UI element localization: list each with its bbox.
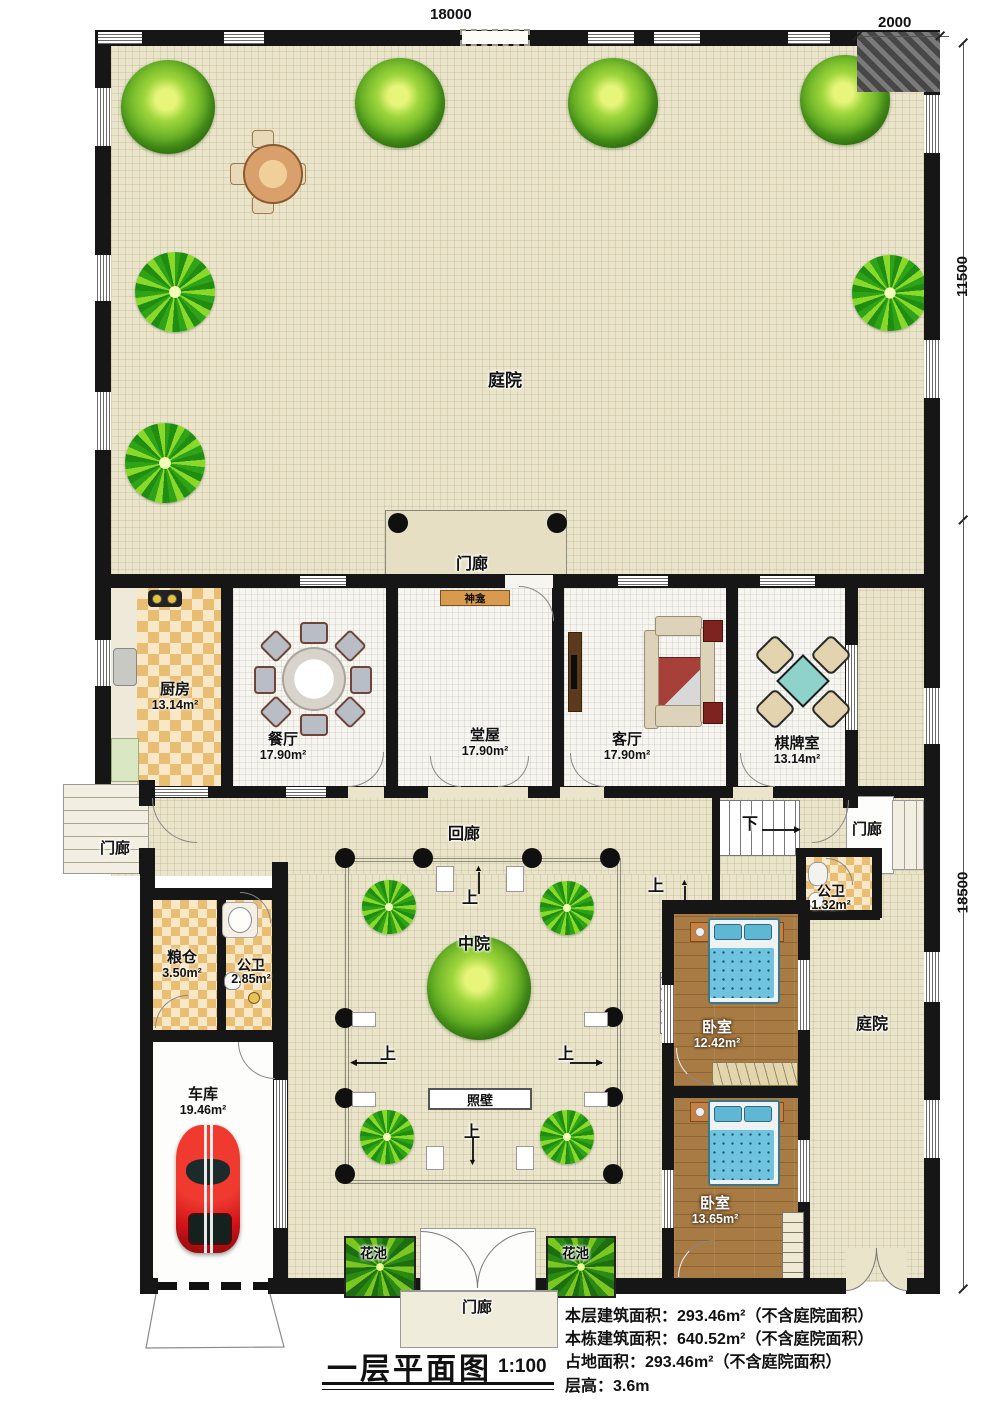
- title-underline-thin: [322, 1389, 554, 1390]
- palm-plant: [540, 1110, 594, 1164]
- sink: [113, 648, 137, 686]
- wardrobe: [712, 1062, 798, 1086]
- chess-label: 棋牌室: [774, 736, 819, 753]
- column: [522, 848, 542, 868]
- palm-plant: [540, 881, 594, 935]
- kitchen-area: 13.14m²: [152, 699, 199, 713]
- granary-label: 粮仓: [167, 950, 197, 967]
- tree: [568, 58, 658, 148]
- column: [335, 848, 355, 868]
- stairs-up-label: 上: [462, 884, 478, 908]
- flower-bed: 花池: [344, 1236, 416, 1298]
- window: [924, 1100, 940, 1158]
- kitchen-label: 厨房: [160, 682, 190, 699]
- tree: [121, 60, 215, 154]
- nightstand: [690, 1102, 710, 1122]
- palm-plant: [135, 252, 215, 332]
- stair-flight: [782, 1212, 804, 1280]
- floor-plan: 庭院 门廊: [0, 0, 1000, 1414]
- column: [547, 513, 567, 533]
- wall: [221, 574, 233, 786]
- window: [95, 640, 111, 686]
- dim-line: [857, 36, 949, 37]
- dim-right-upper: 11500: [954, 256, 971, 297]
- garage-door-dashed: [157, 1282, 269, 1290]
- wall: [662, 900, 810, 914]
- wall: [140, 888, 288, 900]
- shrine-label: 神龛: [465, 591, 486, 606]
- door-opening: [428, 787, 528, 798]
- gate-dashed: [462, 31, 528, 44]
- living-label: 客厅: [612, 732, 642, 749]
- window: [924, 95, 940, 153]
- stove-burner: [152, 594, 162, 604]
- pillow: [744, 924, 772, 940]
- window: [224, 32, 264, 44]
- cloister-label: 回廊: [448, 820, 480, 844]
- door-opening: [733, 787, 773, 798]
- column: [603, 1164, 623, 1184]
- dining-table: [282, 647, 346, 711]
- car-windshield: [186, 1159, 230, 1185]
- wall: [906, 1278, 940, 1294]
- screen-window: [286, 787, 326, 797]
- rug: [657, 657, 704, 712]
- arrow-line: [478, 872, 480, 894]
- column: [388, 513, 408, 533]
- flower-bed-right-label: 花池: [562, 1242, 589, 1262]
- wall: [386, 574, 398, 786]
- wall-hatch-block: [857, 32, 940, 92]
- dim-top-width: 18000: [430, 6, 472, 23]
- garden-table: [243, 144, 303, 204]
- bedroom-lower-label: 卧室: [700, 1196, 730, 1213]
- column: [335, 1164, 355, 1184]
- arrow-left-icon: ◀: [350, 1058, 357, 1067]
- window: [924, 952, 940, 1002]
- arrow-down-icon: ▼: [468, 1158, 477, 1167]
- wall: [798, 848, 880, 857]
- dining-label-group: 餐厅 17.90m²: [238, 732, 328, 762]
- palm-plant: [125, 423, 205, 503]
- flower-bed-left-label: 花池: [360, 1242, 387, 1262]
- arrow-line: [762, 829, 796, 831]
- step-base: [352, 1092, 376, 1107]
- window: [618, 576, 668, 586]
- screen-wall: 照壁: [428, 1088, 532, 1110]
- column: [600, 848, 620, 868]
- car: [176, 1125, 240, 1253]
- bedroom-upper-label: 卧室: [702, 1020, 732, 1037]
- bedroom-lower-area: 13.65m²: [692, 1213, 739, 1227]
- car-stripe: [204, 1125, 207, 1253]
- window: [924, 688, 940, 744]
- stairs-down-label: 下: [742, 810, 758, 834]
- bedroom-upper-area: 12.42m²: [694, 1037, 741, 1051]
- gate-post: [516, 1146, 534, 1170]
- palm-plant: [852, 255, 928, 331]
- window: [924, 340, 940, 398]
- door-opening: [505, 575, 553, 588]
- arrow-up-icon: ▲: [680, 878, 689, 887]
- bedroom-upper-label-group: 卧室 12.42m²: [672, 1020, 762, 1050]
- porch-left-steps: [63, 784, 149, 874]
- side-table: [703, 620, 723, 642]
- screen-wall-label: 照壁: [467, 1090, 493, 1109]
- kitchen-label-group: 厨房 13.14m²: [130, 682, 220, 712]
- porch-right-label: 门廊: [852, 818, 882, 839]
- shrine-cabinet: 神龛: [440, 590, 510, 606]
- garage-label-group: 车库 19.46m²: [158, 1087, 248, 1117]
- pillow: [714, 924, 742, 940]
- screen-window: [150, 787, 208, 797]
- courtyard-top-label: 庭院: [488, 366, 522, 391]
- porch-left-label: 门廊: [100, 837, 130, 858]
- window: [300, 576, 346, 586]
- window: [95, 392, 111, 450]
- gate-post: [436, 866, 454, 892]
- window: [788, 32, 830, 44]
- wall: [662, 1086, 810, 1098]
- info-floor-height: 层高：3.6m: [565, 1372, 649, 1396]
- dim-top-right-width: 2000: [878, 14, 911, 31]
- courtyard-right-label: 庭院: [856, 1010, 888, 1034]
- granary-area: 3.50m²: [162, 967, 202, 981]
- wall: [140, 1030, 288, 1042]
- living-area: 17.90m²: [604, 749, 651, 763]
- bath-right-area: 1.32m²: [811, 899, 851, 913]
- door-arc: [876, 1248, 907, 1291]
- title-underline: [322, 1382, 554, 1385]
- step-base: [584, 1012, 608, 1027]
- stairs-up-label: 上: [558, 1040, 574, 1064]
- courtyard-top-floor: [111, 44, 925, 578]
- pillow: [714, 1106, 742, 1122]
- window: [274, 1080, 287, 1228]
- step-base: [584, 1092, 608, 1107]
- dining-chair: [300, 622, 328, 644]
- bath-left-label-group: 公卫 2.85m²: [206, 958, 296, 987]
- door-opening: [560, 787, 604, 798]
- side-table: [703, 702, 723, 724]
- car-stripe: [210, 1125, 213, 1253]
- gate-post: [506, 866, 524, 892]
- wall: [140, 1278, 158, 1294]
- arrow-line: [355, 1062, 387, 1064]
- duvet: [710, 948, 774, 998]
- info-floor-area: 本层建筑面积：293.46m²（不含庭院面积）: [565, 1302, 874, 1326]
- window: [588, 32, 634, 44]
- bedroom-lower-label-group: 卧室 13.65m²: [670, 1196, 760, 1226]
- tv: [571, 655, 577, 689]
- dining-chair: [350, 666, 372, 694]
- porch-top-label: 门廊: [456, 550, 488, 574]
- palm-plant: [360, 1110, 414, 1164]
- wall: [726, 574, 738, 786]
- pillow: [744, 1106, 772, 1122]
- step-base: [352, 1012, 376, 1027]
- bed: [708, 918, 780, 1004]
- chess-area: 13.14m²: [774, 753, 821, 767]
- bath-left-area: 2.85m²: [231, 973, 271, 987]
- door-arc: [846, 1248, 877, 1291]
- palm-plant: [362, 880, 416, 934]
- info-footprint-area: 占地面积：293.46m²（不含庭院面积）: [565, 1348, 842, 1372]
- wall: [268, 1278, 346, 1294]
- sofa: [655, 705, 702, 727]
- gate-post: [426, 1146, 444, 1170]
- garage-label: 车库: [188, 1087, 218, 1104]
- staircase: [718, 800, 800, 856]
- hall-label: 堂屋: [470, 728, 500, 745]
- window: [654, 32, 700, 44]
- bed: [708, 1100, 780, 1186]
- sofa: [655, 616, 702, 636]
- stove-burner: [167, 594, 177, 604]
- nightstand: [690, 922, 710, 942]
- window: [98, 32, 142, 44]
- window: [798, 1140, 810, 1202]
- porch-bottom-label: 门廊: [462, 1296, 492, 1317]
- door-opening: [348, 787, 384, 798]
- wall: [612, 1278, 846, 1294]
- window: [95, 255, 111, 301]
- arrow-up-icon: ▲: [474, 864, 483, 873]
- arrow-right-icon: ▶: [596, 1058, 603, 1067]
- dining-chair: [254, 666, 276, 694]
- column: [413, 848, 433, 868]
- wall: [552, 574, 564, 786]
- window: [760, 576, 815, 586]
- cutting-board: [111, 738, 139, 782]
- tree: [355, 58, 445, 148]
- info-building-area: 本栋建筑面积：640.52m²（不含庭院面积）: [565, 1325, 874, 1349]
- duvet: [710, 1130, 774, 1180]
- flower-bed: 花池: [546, 1236, 616, 1298]
- middle-court-label: 中院: [458, 930, 490, 954]
- stairs-up-label: 上: [380, 1040, 396, 1064]
- driveway: [140, 1292, 290, 1352]
- garage-area: 19.46m²: [180, 1104, 227, 1118]
- dining-area: 17.90m²: [260, 749, 307, 763]
- dim-right-lower: 18500: [954, 872, 971, 914]
- porch-right-steps: [892, 800, 924, 870]
- hall-label-group: 堂屋 17.90m²: [440, 728, 530, 758]
- floor-drain: [248, 992, 260, 1004]
- dining-label: 餐厅: [268, 732, 298, 749]
- arrow-right-icon: ▶: [794, 825, 801, 834]
- window: [798, 960, 810, 1030]
- title-scale: 1:100: [498, 1356, 547, 1378]
- stairs-up-label: 上: [648, 872, 664, 896]
- window: [95, 88, 111, 146]
